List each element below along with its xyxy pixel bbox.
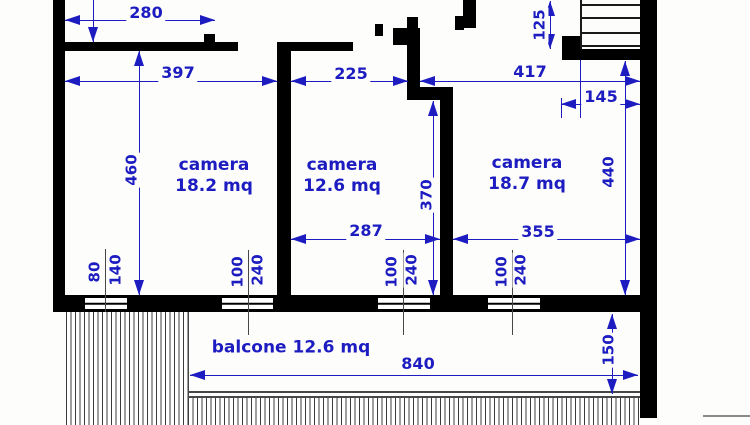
neighbor-balcony-line: [703, 415, 750, 417]
arrow-440-up: [620, 61, 630, 76]
dim-label-355: 355: [518, 223, 557, 241]
dim-label-287: 287: [346, 222, 385, 240]
room3-name: camera: [488, 153, 566, 174]
arrow-287-left: [291, 234, 306, 244]
door-jamb-piece: [375, 24, 383, 36]
dim-label-840: 840: [398, 355, 437, 373]
window1-width-label: 80: [87, 260, 104, 285]
room2-area: 12.6 mq: [303, 176, 381, 197]
arrow-280-right: [200, 15, 215, 25]
arrow-397-right: [262, 76, 277, 86]
room3-area: 18.7 mq: [488, 174, 566, 195]
top-wall-segment-a: [53, 42, 238, 51]
balcony-label: balcone 12.6 mq: [212, 338, 371, 359]
dim-label-417: 417: [510, 63, 549, 81]
room1-name: camera: [175, 155, 253, 176]
dim-line-840: [190, 375, 638, 376]
hall-door-jamb-bar: [463, 0, 476, 28]
arrow-417-right: [625, 76, 640, 86]
terrace-hatch-left: [66, 312, 188, 425]
interior-wall-room1-room2: [277, 42, 291, 295]
interior-wall-room2-room3: [440, 98, 453, 295]
dim-line-440: [625, 61, 626, 295]
stair-tread: [582, 17, 640, 19]
dim-label-280: 280: [126, 4, 165, 22]
window-mullion: [488, 302, 540, 305]
arrow-460-down: [134, 280, 144, 295]
arrow-840-right: [623, 370, 638, 380]
balcony-railing-hatch: [188, 398, 640, 425]
room-label-camera-1: camera 18.2 mq: [175, 155, 253, 197]
arrow-225-left: [291, 76, 306, 86]
arrow-460-up: [134, 51, 144, 66]
stair-tread: [582, 45, 640, 47]
arrow-370-up: [428, 101, 438, 116]
arrow-225-right: [393, 76, 408, 86]
window4-width-label: 100: [494, 254, 511, 289]
balcony-left-edge: [188, 312, 189, 397]
top-wall-notch: [204, 34, 215, 43]
room1-area: 18.2 mq: [175, 176, 253, 197]
dim-label-440: 440: [601, 154, 618, 189]
dim-label-145: 145: [581, 88, 620, 106]
arrow-840-left: [190, 370, 205, 380]
dim-line-417: [420, 81, 640, 82]
stair-tread: [582, 4, 640, 6]
window-symbol-4: [488, 295, 540, 312]
window3-width-label: 100: [384, 254, 401, 289]
stair-bottom-wall: [562, 49, 642, 60]
arrow-355-right: [625, 234, 640, 244]
room-label-camera-3: camera 18.7 mq: [488, 153, 566, 195]
arrow-topdim-down: [88, 27, 98, 42]
window2-width-label: 100: [230, 254, 247, 289]
arrow-150-down: [607, 379, 617, 394]
stair-tread: [582, 32, 640, 34]
bottom-outer-wall: [53, 295, 657, 312]
arrow-145-right: [625, 99, 640, 109]
dim-label-150: 150: [601, 332, 618, 367]
window4-height-label: 240: [513, 252, 530, 287]
window1-height-label: 140: [108, 252, 125, 287]
window3-height-label: 240: [404, 252, 421, 287]
arrow-417-left: [420, 76, 435, 86]
arrow-440-down: [620, 280, 630, 295]
dim-label-225: 225: [331, 65, 370, 83]
arrow-150-up: [607, 314, 617, 329]
dim-label-460: 460: [124, 152, 141, 187]
arrow-287-right: [425, 234, 440, 244]
room2-name: camera: [303, 155, 381, 176]
balcony-bottom-edge-inner: [188, 396, 640, 398]
room-label-camera-2: camera 12.6 mq: [303, 155, 381, 197]
arrow-280-left: [65, 15, 80, 25]
staircase: [580, 0, 640, 49]
arrow-397-left: [65, 76, 80, 86]
arrow-370-down: [428, 280, 438, 295]
arrow-145-left: [561, 99, 576, 109]
interior-wall2-upper-column: [407, 28, 420, 90]
balcony-bottom-edge-outer: [188, 391, 640, 393]
dim-label-370: 370: [419, 177, 436, 212]
dim-label-125: 125: [532, 7, 549, 42]
dim-label-397: 397: [158, 64, 197, 82]
right-outer-wall: [640, 0, 657, 418]
hall-door-jamb-foot: [455, 16, 464, 30]
floor-plan: 280 397 225 417 145 287 355 840 125 460 …: [0, 0, 750, 425]
window2-height-label: 240: [250, 252, 267, 287]
arrow-355-left: [453, 234, 468, 244]
